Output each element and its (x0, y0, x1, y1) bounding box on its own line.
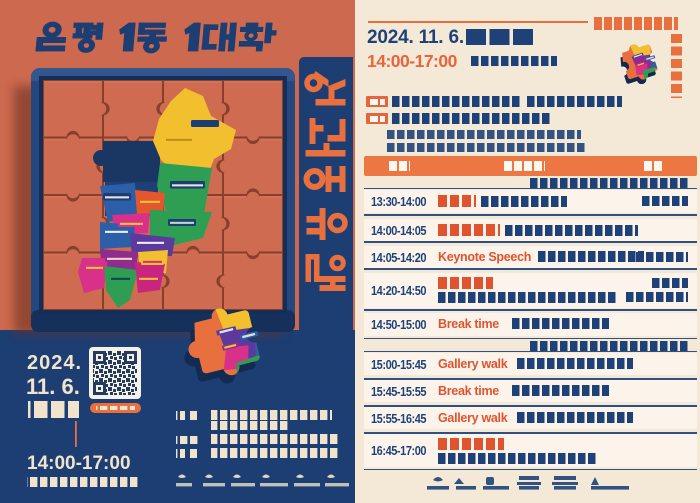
svg-text:11. 6.: 11. 6. (26, 374, 80, 399)
svg-text:14:00-17:00: 14:00-17:00 (27, 453, 131, 474)
svg-text:2024.: 2024. (27, 352, 82, 374)
